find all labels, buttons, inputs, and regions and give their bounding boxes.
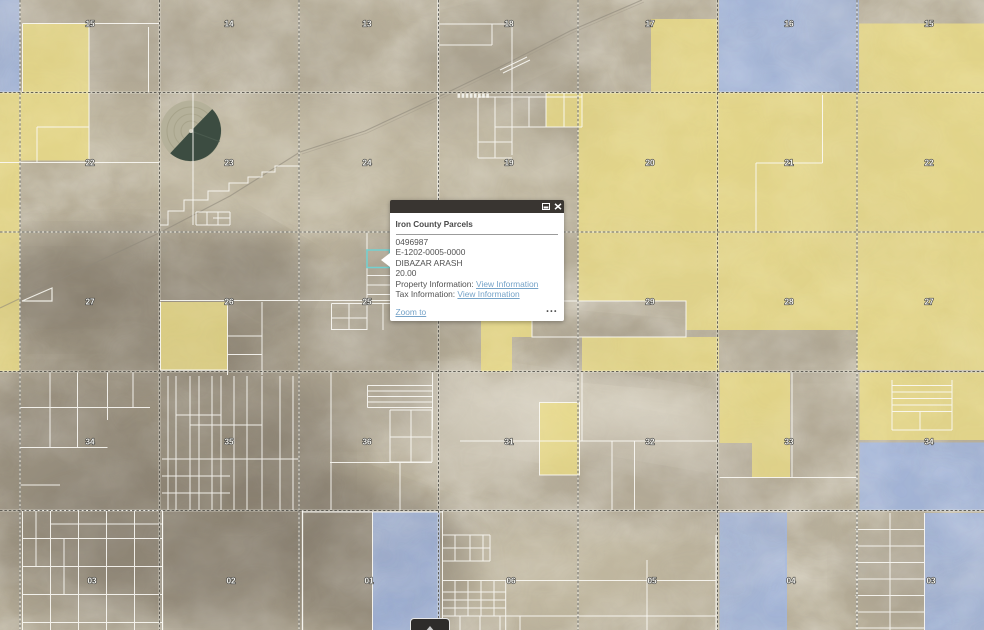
svg-text:27: 27 <box>924 298 934 307</box>
svg-text:33: 33 <box>784 438 794 447</box>
svg-text:01: 01 <box>364 577 374 586</box>
svg-text:18: 18 <box>504 20 514 29</box>
svg-text:28: 28 <box>784 298 794 307</box>
svg-text:26: 26 <box>224 298 234 307</box>
svg-text:34: 34 <box>85 438 95 447</box>
svg-text:02: 02 <box>226 577 236 586</box>
svg-text:15: 15 <box>85 20 95 29</box>
svg-text:27: 27 <box>85 298 95 307</box>
svg-text:22: 22 <box>924 159 934 168</box>
svg-text:14: 14 <box>224 20 234 29</box>
svg-text:31: 31 <box>504 438 514 447</box>
svg-text:24: 24 <box>362 159 372 168</box>
svg-text:05: 05 <box>647 577 657 586</box>
svg-text:35: 35 <box>224 438 234 447</box>
svg-text:25: 25 <box>362 298 372 307</box>
svg-text:17: 17 <box>645 20 655 29</box>
svg-text:23: 23 <box>224 159 234 168</box>
svg-text:34: 34 <box>924 438 934 447</box>
svg-text:36: 36 <box>362 438 372 447</box>
svg-text:21: 21 <box>784 159 794 168</box>
svg-text:04: 04 <box>786 577 796 586</box>
svg-text:13: 13 <box>362 20 372 29</box>
svg-text:19: 19 <box>504 159 514 168</box>
svg-text:03: 03 <box>87 577 97 586</box>
svg-text:32: 32 <box>645 438 655 447</box>
svg-text:15: 15 <box>924 20 934 29</box>
svg-text:29: 29 <box>645 298 655 307</box>
svg-text:20: 20 <box>645 159 655 168</box>
svg-text:16: 16 <box>784 20 794 29</box>
svg-text:03: 03 <box>926 577 936 586</box>
svg-text:06: 06 <box>506 577 516 586</box>
svg-text:22: 22 <box>85 159 95 168</box>
